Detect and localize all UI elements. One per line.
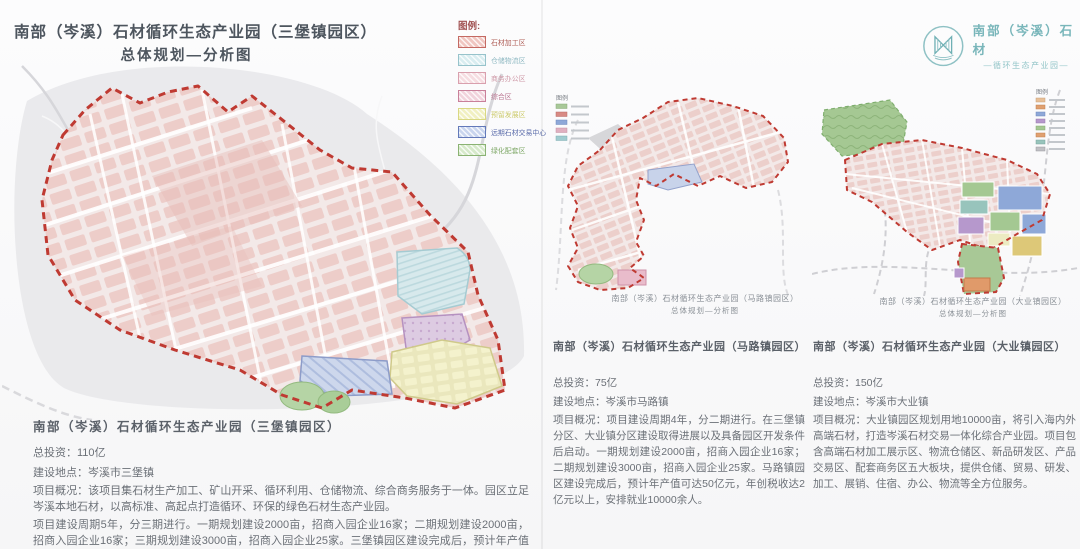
project-overview: 项目概况：项目建设周期4年，分二期进行。在三堡镇分区、大业镇分区建设取得进展以及…: [553, 412, 805, 508]
location-label: 建设地点：: [33, 467, 88, 479]
location-line: 建设地点：岑溪市马路镇: [553, 395, 805, 410]
brand-logo: 南部（岑溪）石材 —循环生态产业园—: [922, 20, 1080, 71]
legend-header: 图例:: [458, 18, 538, 32]
zone-green: [579, 264, 613, 284]
info-block-daye: 南部（岑溪）石材循环生态产业园（大业镇园区） 总投资：150亿 建设地点：岑溪市…: [813, 338, 1076, 492]
zone-warehouse-cyan: [397, 248, 470, 314]
park-area-daye: [845, 140, 1050, 256]
info-heading: 南部（岑溪）石材循环生态产业园（马路镇园区）: [553, 338, 805, 354]
caption-line2: 总体规划—分析图: [590, 305, 820, 316]
logo-line1: 南部（岑溪）石材: [973, 20, 1080, 58]
info-block-sanbao: 南部（岑溪）石材循环生态产业园（三堡镇园区） 总投资：110亿 建设地点：岑溪市…: [33, 416, 529, 549]
park-tail-daye: [954, 244, 1004, 294]
investment-value: 110亿: [77, 447, 106, 459]
legend-swatch-icon: [458, 72, 486, 84]
logo-text: 南部（岑溪）石材 —循环生态产业园—: [973, 20, 1080, 71]
location-value: 岑溪市马路镇: [606, 396, 669, 408]
legend-swatch-icon: [458, 90, 486, 102]
park-area-malu: [568, 98, 788, 290]
mini-legend-header: 图例: [556, 94, 568, 102]
legend-item: 绿化配套区: [458, 144, 538, 156]
legend-item: 石材加工区: [458, 36, 538, 48]
investment-value: 75亿: [595, 377, 617, 389]
legend-item: 仓储物流区: [458, 54, 538, 66]
legend-item: 远期石材交易中心: [458, 126, 538, 138]
project-overview: 项目概况：大业镇园区规划用地10000亩，将引入海内外高端石材，打造岑溪石材交易…: [813, 412, 1076, 492]
legend-swatch-icon: [458, 36, 486, 48]
logo-emblem-icon: [922, 23, 965, 69]
legend-label: 远期石材交易中心: [491, 127, 546, 137]
map-caption-malu: 南部（岑溪）石材循环生态产业园（马路镇园区） 总体规划—分析图: [590, 293, 820, 316]
info-heading: 南部（岑溪）石材循环生态产业园（三堡镇园区）: [33, 416, 529, 435]
zone-orange: [964, 278, 990, 291]
investment-label: 总投资：: [33, 447, 77, 459]
legend-label: 综合区: [491, 91, 512, 101]
planning-poster: 南部（岑溪）石材循环生态产业园（三堡镇园区） 总体规划—分析图: [0, 0, 1080, 549]
legend-label: 绿化配套区: [491, 145, 526, 155]
page-title-line1: 南部（岑溪）石材循环生态产业园（三堡镇园区）: [14, 20, 374, 42]
project-overview: 项目概况：该项目集石材生产加工、矿山开采、循环利用、仓储物流、综合商务服务于一体…: [33, 483, 529, 515]
investment-line: 总投资：75亿: [553, 376, 805, 391]
panel-divider: [541, 0, 543, 549]
investment-label: 总投资：: [553, 377, 595, 389]
investment-line: 总投资：110亿: [33, 445, 529, 461]
caption-line1: 南部（岑溪）石材循环生态产业园（大业镇园区）: [858, 296, 1080, 307]
mini-legend: 图例: [1036, 88, 1065, 151]
zone-purple-small: [954, 268, 964, 278]
location-label: 建设地点：: [553, 396, 606, 408]
legend-item: 预留发展区: [458, 108, 538, 120]
info-block-malu: 南部（岑溪）石材循环生态产业园（马路镇园区） 总投资：75亿 建设地点：岑溪市马…: [553, 338, 805, 508]
legend-label: 预留发展区: [491, 109, 526, 119]
investment-label: 总投资：: [813, 377, 855, 389]
investment-value: 150亿: [855, 377, 883, 389]
location-line: 建设地点：岑溪市三堡镇: [33, 465, 529, 481]
legend-label: 商务办公区: [491, 73, 526, 83]
legend-item: 综合区: [458, 90, 538, 102]
investment-line: 总投资：150亿: [813, 376, 1076, 391]
legend: 图例: 石材加工区 仓储物流区 商务办公区 综合区 预留发展区 远期石材交易中心…: [458, 18, 538, 162]
location-label: 建设地点：: [813, 396, 866, 408]
zone-green-2: [318, 391, 350, 413]
location-value: 岑溪市大业镇: [866, 396, 929, 408]
logo-line2: —循环生态产业园—: [973, 60, 1080, 71]
legend-swatch-icon: [458, 108, 486, 120]
mini-legend-header: 图例: [1036, 88, 1048, 96]
legend-swatch-icon: [458, 144, 486, 156]
legend-item: 商务办公区: [458, 72, 538, 84]
legend-label: 仓储物流区: [491, 55, 526, 65]
caption-line2: 总体规划—分析图: [858, 308, 1080, 319]
info-heading: 南部（岑溪）石材循环生态产业园（大业镇园区）: [813, 338, 1076, 354]
legend-swatch-icon: [458, 126, 486, 138]
legend-swatch-icon: [458, 54, 486, 66]
caption-line1: 南部（岑溪）石材循环生态产业园（马路镇园区）: [590, 293, 820, 304]
location-line: 建设地点：岑溪市大业镇: [813, 395, 1076, 410]
map-daye: 图例: [812, 82, 1078, 296]
location-value: 岑溪市三堡镇: [88, 467, 154, 479]
project-phases: 项目建设周期5年，分三期进行。一期规划建设2000亩，招商入园企业16家；二期规…: [33, 517, 529, 549]
map-malu: 图例: [548, 90, 800, 295]
map-sanbao: [2, 56, 536, 420]
legend-label: 石材加工区: [491, 37, 526, 47]
map-caption-daye: 南部（岑溪）石材循环生态产业园（大业镇园区） 总体规划—分析图: [858, 296, 1080, 319]
